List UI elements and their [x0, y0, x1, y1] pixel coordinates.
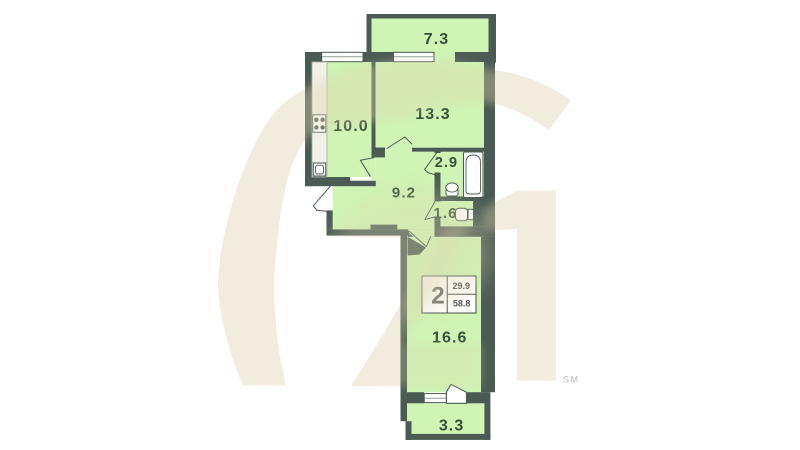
svg-text:7.3: 7.3 [424, 31, 450, 48]
svg-text:SM: SM [563, 375, 580, 385]
svg-text:2.9: 2.9 [435, 155, 458, 171]
svg-text:3.3: 3.3 [439, 418, 465, 435]
svg-text:16.6: 16.6 [432, 330, 468, 347]
